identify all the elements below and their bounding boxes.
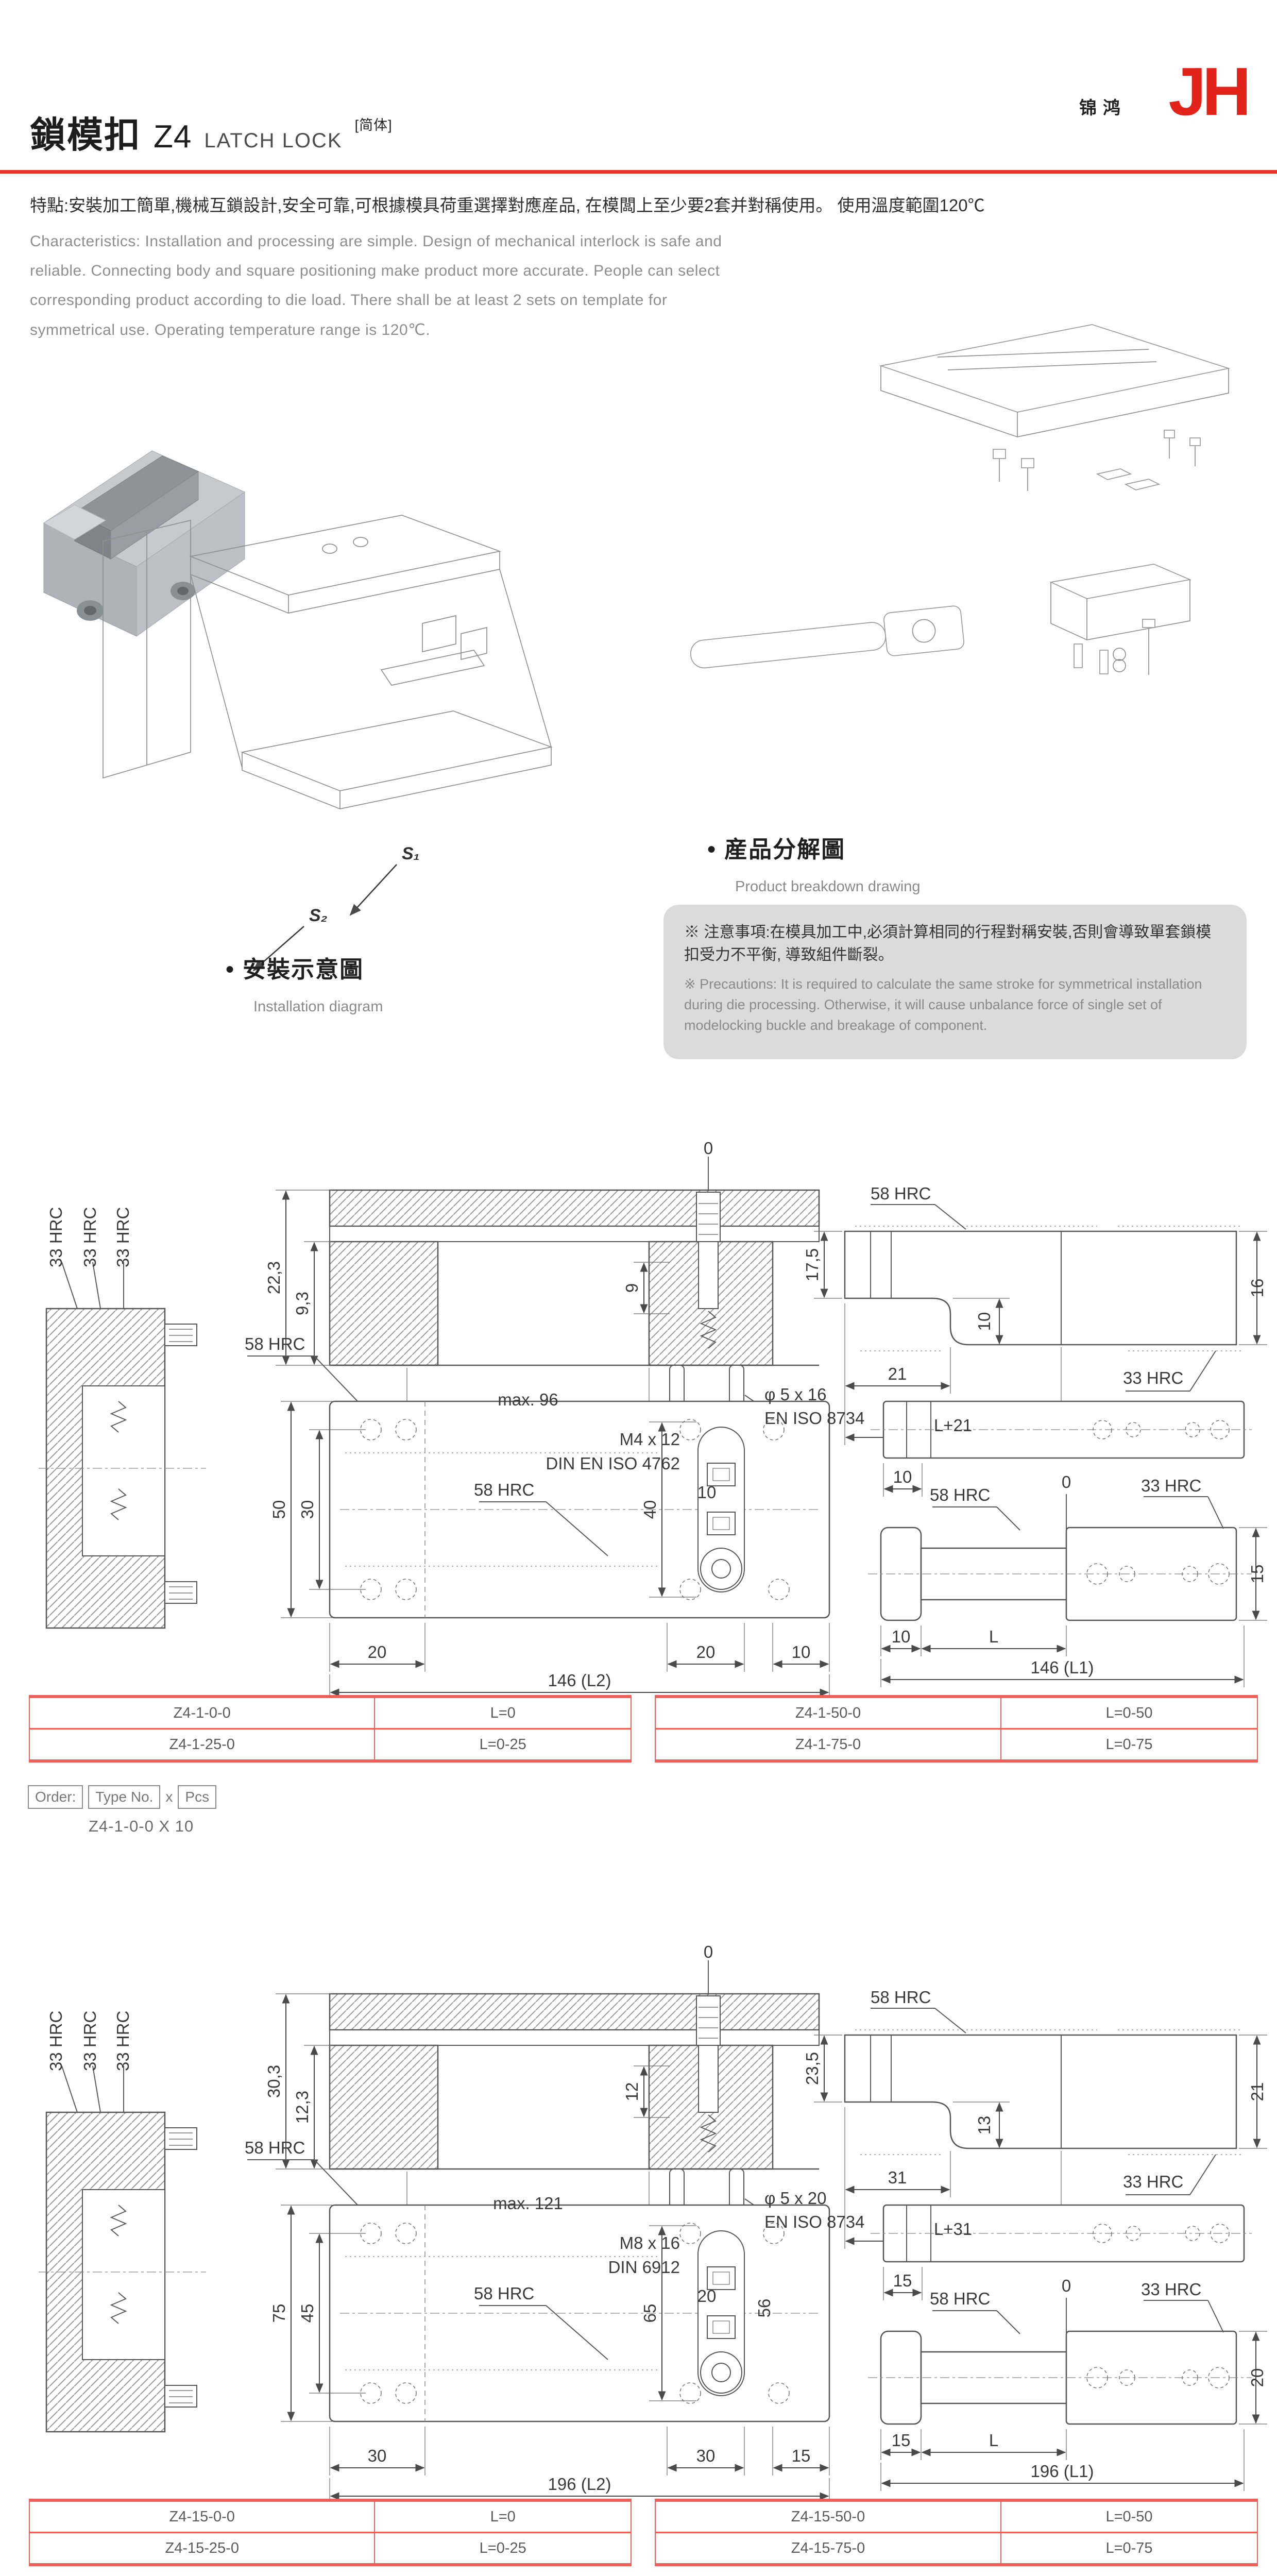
pin-spec: φ 5 x 16	[764, 1385, 826, 1404]
page-title: 鎖模扣 Z4 LATCH LOCK [简体]	[30, 106, 393, 158]
installation-caption-en: Installation diagram	[253, 998, 383, 1015]
catalog-page: 鎖模扣 Z4 LATCH LOCK [简体] 锦鸿 JH 特點:安裝加工簡單,機…	[0, 0, 1277, 2576]
type-no-label: Type No.	[88, 1785, 160, 1809]
dim-bottom-1: 20	[368, 1642, 387, 1662]
hardness-label: 58 HRC	[930, 2289, 990, 2308]
drawing-section-z4-15: 33 HRC 33 HRC 33 HRC 0 30,3 12,3 12 max.…	[0, 1865, 1277, 2504]
part-number: Z4-15-25-0	[30, 2533, 375, 2563]
datum-zero: 0	[704, 1942, 713, 1961]
dim-bottom-2: 30	[696, 2446, 716, 2465]
dim-head: 10	[892, 1627, 911, 1646]
order-label: Order:	[28, 1785, 83, 1809]
length-range: L=0-50	[1001, 2502, 1257, 2532]
characteristics-en-line: Characteristics: Installation and proces…	[30, 233, 722, 250]
screw-standard: DIN 6912	[608, 2258, 680, 2277]
dim-head-width: 15	[893, 2271, 912, 2290]
mold-wireframe	[103, 515, 551, 809]
screw-spec: M8 x 16	[620, 2233, 680, 2252]
pin-standard: EN ISO 8734	[764, 1409, 864, 1428]
length-range: L=0-50	[1001, 1698, 1257, 1728]
brand-logo-icon: JH	[1168, 58, 1247, 126]
dim-sub-height: 12,3	[293, 2091, 312, 2124]
part-number: Z4-1-50-0	[656, 1698, 1001, 1728]
header-divider	[0, 170, 1277, 174]
table-row: Z4-1-0-0 L=0	[30, 1698, 631, 1730]
hardness-label: 33 HRC	[1141, 2280, 1201, 2299]
breakdown-caption-zh: 産品分解圖	[707, 831, 845, 864]
length-range: L=0	[375, 2502, 631, 2532]
dim-latch-step: 13	[975, 2116, 994, 2135]
order-example: Z4-1-0-0 X 10	[89, 1817, 222, 1836]
dim-bar-length-l1: 146 (L1)	[1031, 1658, 1094, 1677]
latch-plan-view	[868, 1401, 1267, 1687]
screw-standard: DIN EN ISO 4762	[546, 1454, 680, 1473]
order-note: Order:Type No.xPcs Z4-1-0-0 X 10	[28, 1785, 222, 1836]
dim-bar-height: 15	[1248, 1565, 1267, 1584]
dim-head: 15	[892, 2431, 911, 2450]
precautions-zh: ※ 注意事項:在模具加工中,必須計算相同的行程對稱安裝,否則會導致單套鎖模扣受力…	[684, 921, 1226, 967]
part-number: Z4-1-75-0	[656, 1730, 1001, 1759]
dim-bottom-1: 30	[368, 2446, 387, 2465]
product-model: Z4	[154, 118, 192, 155]
characteristics-zh: 特點:安裝加工簡單,機械互鎖設計,安全可靠,可根據模具荷重選擇對應産品, 在模闆…	[30, 192, 1266, 216]
hardness-label: 58 HRC	[871, 1184, 931, 1203]
dim-screw-depth: 9	[622, 1283, 641, 1293]
dim-sub-height: 9,3	[293, 1292, 312, 1315]
side-section-view	[39, 2066, 206, 2432]
length-range: L=0-75	[1001, 1730, 1257, 1759]
dim-slot-2: 56	[755, 2299, 774, 2318]
hardness-label: 33 HRC	[1123, 2172, 1183, 2191]
part-number: Z4-1-25-0	[30, 1730, 375, 1759]
pcs-label: Pcs	[178, 1785, 216, 1809]
hardness-label: 58 HRC	[930, 1485, 990, 1504]
times-label: x	[165, 1789, 173, 1805]
dim-body-length-l2: 146 (L2)	[548, 1671, 611, 1690]
characteristics-en-line: reliable. Connecting body and square pos…	[30, 262, 720, 280]
dim-latch-height: 16	[1248, 1279, 1267, 1298]
datum-zero: 0	[704, 1139, 713, 1158]
table-row: Z4-15-75-0 L=0-75	[656, 2533, 1257, 2563]
dim-latch-step: 10	[975, 1312, 994, 1331]
hardness-label: 33 HRC	[113, 2011, 132, 2071]
length-range: L=0-25	[375, 1730, 631, 1759]
stroke-arrow-s1	[350, 865, 397, 915]
hardness-label: 33 HRC	[80, 1207, 99, 1267]
hardness-label: 33 HRC	[46, 2011, 65, 2071]
product-name-zh: 鎖模扣	[30, 106, 141, 158]
dim-total-height: 22,3	[264, 1261, 283, 1294]
hardness-label: 58 HRC	[245, 2138, 305, 2157]
length-range: L=0	[375, 1698, 631, 1728]
hardness-label: 33 HRC	[80, 2011, 99, 2071]
spec-table: Z4-15-0-0 L=0 Z4-15-25-0 L=0-25	[29, 2499, 632, 2566]
dim-body-outer: 50	[269, 1500, 288, 1519]
part-number: Z4-15-50-0	[656, 2502, 1001, 2532]
table-row: Z4-15-0-0 L=0	[30, 2502, 631, 2533]
dim-pin-gap: 10	[697, 1483, 717, 1502]
table-row: Z4-1-25-0 L=0-25	[30, 1730, 631, 1759]
brand-logo-text: 锦鸿	[1079, 94, 1127, 119]
hardness-label: 58 HRC	[871, 1988, 931, 2007]
side-section-view	[39, 1262, 206, 1628]
dim-max-stroke: max. 121	[493, 2194, 563, 2213]
pin-standard: EN ISO 8734	[764, 2212, 864, 2231]
dim-bar-length-l1: 196 (L1)	[1031, 2462, 1094, 2481]
exploded-parts-wireframe	[689, 325, 1229, 677]
dim-head-width: 10	[893, 1467, 912, 1486]
dim-bottom-3: 10	[792, 1642, 811, 1662]
spec-table: Z4-1-0-0 L=0 Z4-1-25-0 L=0-25	[29, 1695, 632, 1762]
product-name-en: LATCH LOCK	[204, 129, 342, 152]
dim-total-height: 30,3	[264, 2065, 283, 2098]
installation-diagram: S₁ S₂	[72, 464, 639, 979]
dim-bottom-3: 15	[792, 2446, 811, 2465]
stroke-label-s1: S₁	[402, 844, 420, 863]
dim-latch-height: 21	[1248, 2082, 1267, 2102]
dim-latch-lplus: L+31	[934, 2219, 972, 2239]
dim-pin-gap: 20	[697, 2286, 717, 2306]
dim-slot: 40	[640, 1500, 659, 1519]
hardness-label: 33 HRC	[113, 1207, 132, 1267]
dim-stroke-l: L	[989, 2431, 998, 2450]
length-range: L=0-25	[375, 2533, 631, 2563]
latch-plan-view	[868, 2205, 1267, 2491]
dim-latch-lplus: L+21	[934, 1416, 972, 1435]
language-tag: [简体]	[355, 114, 393, 134]
datum-zero: 0	[1062, 1472, 1071, 1492]
dim-body-inner: 45	[298, 2304, 317, 2323]
dim-max-stroke: max. 96	[498, 1390, 558, 1409]
dim-latch-head-height: 17,5	[803, 1248, 822, 1281]
spec-table: Z4-15-50-0 L=0-50 Z4-15-75-0 L=0-75	[655, 2499, 1258, 2566]
drawing-section-z4-1: 33 HRC 33 HRC 33 HRC 0 22,3 9,3 9 max. 9…	[0, 1061, 1277, 1700]
dim-bar-height: 20	[1248, 2368, 1267, 2387]
characteristics-en-line: corresponding product according to die l…	[30, 292, 667, 309]
hardness-label: 33 HRC	[1123, 1368, 1183, 1387]
table-row: Z4-1-50-0 L=0-50	[656, 1698, 1257, 1730]
part-number: Z4-15-0-0	[30, 2502, 375, 2532]
dim-body-outer: 75	[269, 2304, 288, 2323]
length-range: L=0-75	[1001, 2533, 1257, 2563]
hardness-label: 58 HRC	[474, 2284, 534, 2303]
dim-body-inner: 30	[298, 1500, 317, 1519]
dim-slot: 65	[640, 2304, 659, 2323]
table-row: Z4-15-50-0 L=0-50	[656, 2502, 1257, 2533]
pin-spec: φ 5 x 20	[764, 2189, 826, 2208]
hardness-label: 33 HRC	[46, 1207, 65, 1267]
screw-spec: M4 x 12	[620, 1430, 680, 1449]
dim-latch-front: 21	[888, 1364, 907, 1383]
precautions-en: ※ Precautions: It is required to calcula…	[684, 974, 1226, 1036]
dim-bottom-2: 20	[696, 1642, 716, 1662]
characteristics-en-line: symmetrical use. Operating temperature r…	[30, 321, 430, 339]
part-number: Z4-15-75-0	[656, 2533, 1001, 2563]
dim-stroke-l: L	[989, 1627, 998, 1646]
exploded-view	[659, 304, 1275, 824]
dim-latch-head-height: 23,5	[803, 2052, 822, 2085]
breakdown-caption-en: Product breakdown drawing	[735, 878, 920, 895]
datum-zero: 0	[1062, 2276, 1071, 2295]
hardness-label: 33 HRC	[1141, 1476, 1201, 1495]
table-row: Z4-1-75-0 L=0-75	[656, 1730, 1257, 1759]
hardness-label: 58 HRC	[474, 1480, 534, 1499]
precautions-box: ※ 注意事項:在模具加工中,必須計算相同的行程對稱安裝,否則會導致單套鎖模扣受力…	[663, 905, 1247, 1059]
hardness-label: 58 HRC	[245, 1334, 305, 1353]
dim-latch-front: 31	[888, 2168, 907, 2187]
installation-caption-zh: 安裝示意圖	[225, 951, 364, 984]
table-row: Z4-15-25-0 L=0-25	[30, 2533, 631, 2563]
dim-screw-depth: 12	[622, 2082, 641, 2102]
spec-table: Z4-1-50-0 L=0-50 Z4-1-75-0 L=0-75	[655, 1695, 1258, 1762]
stroke-label-s2: S₂	[309, 906, 328, 925]
part-number: Z4-1-0-0	[30, 1698, 375, 1728]
dim-body-length-l2: 196 (L2)	[548, 2475, 611, 2494]
